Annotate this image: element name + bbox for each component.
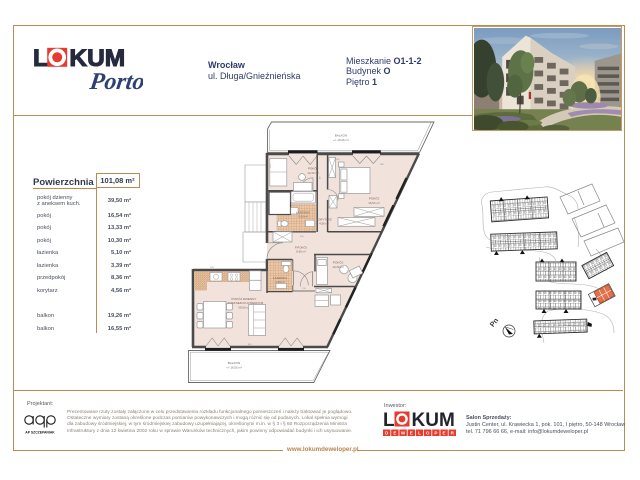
svg-text:AP SZCZEPANIAK: AP SZCZEPANIAK xyxy=(25,431,55,435)
svg-text:L: L xyxy=(383,410,395,431)
svg-text:39,50 m²: 39,50 m² xyxy=(238,305,249,309)
svg-text:KUM: KUM xyxy=(69,46,125,72)
svg-text:L: L xyxy=(418,431,421,436)
svg-text:P: P xyxy=(434,431,437,436)
svg-text:10,30 m²: 10,30 m² xyxy=(332,265,343,269)
svg-text:BALKON: BALKON xyxy=(228,361,241,365)
svg-text:13,33 m²: 13,33 m² xyxy=(307,171,318,175)
svg-text:3,39 m²: 3,39 m² xyxy=(275,280,285,284)
svg-text:E: E xyxy=(443,431,446,436)
svg-text:E: E xyxy=(410,431,413,436)
svg-text:Porto: Porto xyxy=(87,69,143,95)
svg-text:+/- 16,55 m²: +/- 16,55 m² xyxy=(226,366,242,370)
svg-text:Pn: Pn xyxy=(489,317,500,328)
svg-text:8,36 m²: 8,36 m² xyxy=(296,250,306,254)
svg-text:16,54 m²: 16,54 m² xyxy=(368,201,379,205)
svg-text:POKÓJ: POKÓJ xyxy=(333,260,344,265)
svg-text:KUM: KUM xyxy=(412,410,455,431)
svg-text:E: E xyxy=(393,431,396,436)
svg-text:W: W xyxy=(401,431,406,436)
svg-text:+/- 19,26 m²: +/- 19,26 m² xyxy=(333,138,349,142)
svg-text:5,10 m²: 5,10 m² xyxy=(298,215,308,219)
svg-text:O: O xyxy=(426,431,430,436)
svg-text:L: L xyxy=(33,46,48,72)
svg-text:POKÓJ: POKÓJ xyxy=(308,166,319,171)
svg-text:POKÓJ: POKÓJ xyxy=(369,196,380,201)
svg-text:BALKON: BALKON xyxy=(335,134,348,138)
svg-text:4,56 m²: 4,56 m² xyxy=(319,222,329,226)
